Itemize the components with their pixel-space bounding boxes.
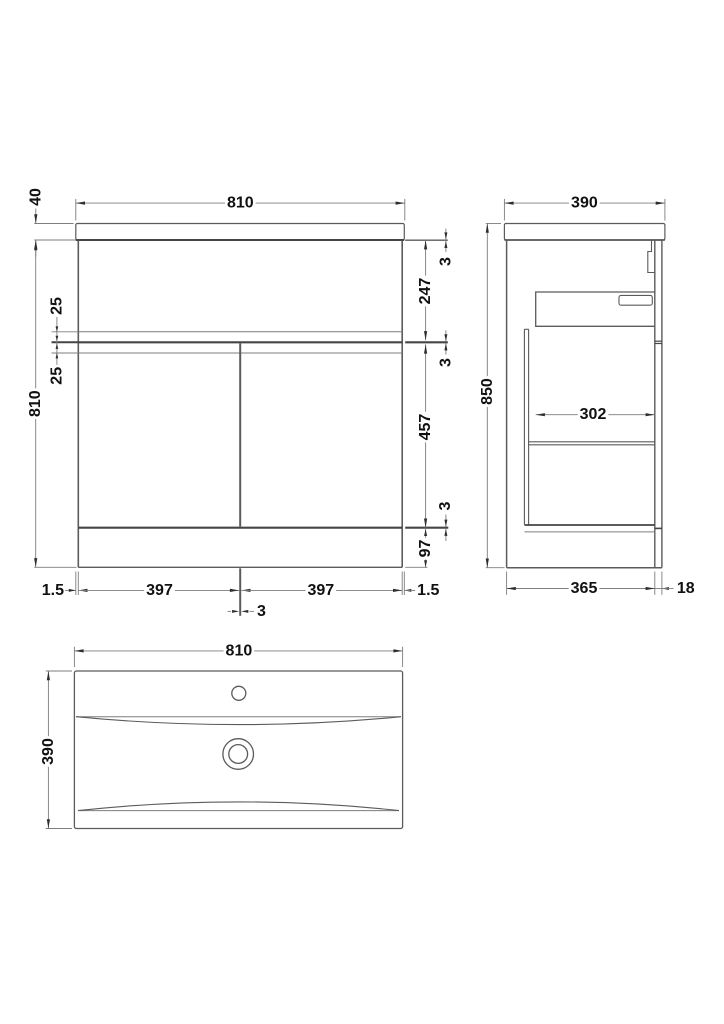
svg-text:3: 3 xyxy=(437,358,454,367)
svg-text:457: 457 xyxy=(417,414,434,441)
svg-text:25: 25 xyxy=(48,367,65,385)
svg-text:97: 97 xyxy=(417,540,434,558)
svg-text:247: 247 xyxy=(417,278,434,305)
svg-text:397: 397 xyxy=(307,582,334,599)
svg-text:40: 40 xyxy=(27,188,44,206)
svg-text:302: 302 xyxy=(580,406,607,423)
svg-text:18: 18 xyxy=(677,580,695,597)
svg-text:390: 390 xyxy=(571,195,598,212)
svg-text:1.5: 1.5 xyxy=(417,582,439,599)
svg-text:397: 397 xyxy=(146,582,173,599)
svg-text:390: 390 xyxy=(40,738,57,765)
svg-text:810: 810 xyxy=(226,642,253,659)
svg-text:365: 365 xyxy=(571,580,598,597)
svg-text:810: 810 xyxy=(27,390,44,417)
svg-text:810: 810 xyxy=(227,195,254,212)
svg-text:1.5: 1.5 xyxy=(42,582,64,599)
svg-text:3: 3 xyxy=(257,603,266,620)
svg-text:3: 3 xyxy=(437,501,454,510)
svg-text:25: 25 xyxy=(48,297,65,315)
svg-text:3: 3 xyxy=(438,257,455,266)
svg-text:850: 850 xyxy=(479,378,496,405)
